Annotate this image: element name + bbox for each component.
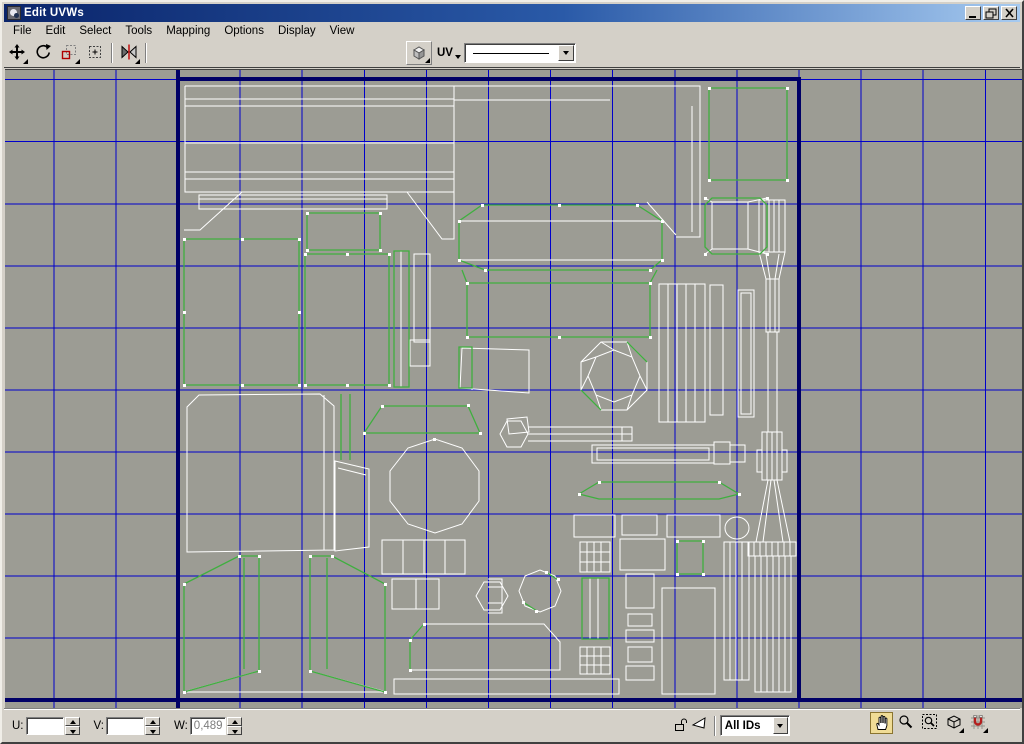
scale-tool-button[interactable]: [57, 41, 81, 65]
titlebar[interactable]: Edit UVWs: [4, 4, 1020, 22]
statusbar-separator: [714, 716, 716, 736]
menu-edit[interactable]: Edit: [39, 24, 73, 38]
menu-view[interactable]: View: [323, 24, 362, 38]
uv-flyout-arrow-icon[interactable]: [455, 55, 461, 59]
minimize-button[interactable]: [965, 6, 981, 20]
uv-axes: [5, 70, 1023, 708]
menu-mapping[interactable]: Mapping: [159, 24, 217, 38]
cube-map-icon: [410, 43, 428, 64]
edit-uvws-window: Edit UVWs File Edit Select Tools Mapping…: [0, 0, 1024, 744]
v-value-field[interactable]: [106, 717, 144, 735]
toolbar-separator: [145, 43, 147, 63]
v-spinner[interactable]: [145, 717, 160, 735]
texture-dropdown[interactable]: [464, 43, 576, 63]
menu-select[interactable]: Select: [72, 24, 118, 38]
menu-options[interactable]: Options: [217, 24, 271, 38]
w-spinner[interactable]: [227, 717, 242, 735]
maximize-button[interactable]: [983, 6, 999, 20]
mirror-tool-button[interactable]: [117, 41, 141, 65]
menu-bar: File Edit Select Tools Mapping Options D…: [4, 22, 1020, 39]
w-value-field[interactable]: 0,489: [190, 717, 226, 735]
menu-tools[interactable]: Tools: [118, 24, 159, 38]
move-icon: [8, 43, 26, 64]
uv-wireframe-view[interactable]: [5, 70, 1023, 708]
uv-space-label[interactable]: UV: [437, 47, 453, 59]
view-nav-tools: [870, 712, 989, 734]
move-tool-button[interactable]: [5, 41, 29, 65]
toolbar: UV: [4, 39, 1020, 68]
pan-hand-icon: [873, 713, 891, 734]
u-spinner[interactable]: [65, 717, 80, 735]
w-label: W:: [174, 720, 188, 732]
mirror-icon: [120, 43, 138, 64]
uv-vertex-dots[interactable]: [183, 87, 789, 694]
magnifier-icon: [897, 713, 915, 734]
unlocked-padlock-icon: [672, 716, 688, 735]
pan-tool-button[interactable]: [870, 712, 893, 734]
zoom-region-button[interactable]: [918, 712, 941, 734]
freeform-gizmo-button[interactable]: [83, 41, 107, 65]
rotate-tool-button[interactable]: [31, 41, 55, 65]
rotate-icon: [34, 43, 52, 64]
freeform-icon: [86, 43, 104, 64]
status-bar: U: V: W: 0,489 All IDs: [4, 708, 1020, 742]
toolbar-separator: [111, 43, 113, 63]
flyout-corner: [959, 728, 965, 734]
scale-icon: [60, 43, 78, 64]
v-label: V:: [94, 720, 104, 732]
texture-dropdown-none-line: [473, 53, 549, 54]
window-title: Edit UVWs: [24, 7, 84, 19]
snap-magnet-icon: [969, 713, 987, 734]
zoom-tool-button[interactable]: [894, 712, 917, 734]
menu-display[interactable]: Display: [271, 24, 323, 38]
lock-selected-button[interactable]: [670, 717, 690, 735]
filter-faces-icon: [691, 716, 709, 735]
uv-editor-canvas[interactable]: [5, 69, 1023, 708]
id-filter-arrow[interactable]: [773, 717, 788, 734]
u-label: U:: [12, 720, 24, 732]
id-filter-value: All IDs: [721, 720, 772, 732]
zoom-extents-button[interactable]: [942, 712, 965, 734]
filter-faces-button[interactable]: [690, 717, 710, 735]
show-map-button[interactable]: [406, 41, 432, 65]
snap-toggle-button[interactable]: [966, 712, 989, 734]
zoom-region-icon: [921, 713, 939, 734]
app-icon: [7, 6, 21, 20]
close-button[interactable]: [1001, 6, 1017, 20]
u-value-field[interactable]: [26, 717, 64, 735]
menu-file[interactable]: File: [6, 24, 39, 38]
texture-dropdown-arrow[interactable]: [558, 45, 574, 61]
id-filter-dropdown[interactable]: All IDs: [720, 715, 790, 736]
grid-lines: [5, 70, 1023, 708]
